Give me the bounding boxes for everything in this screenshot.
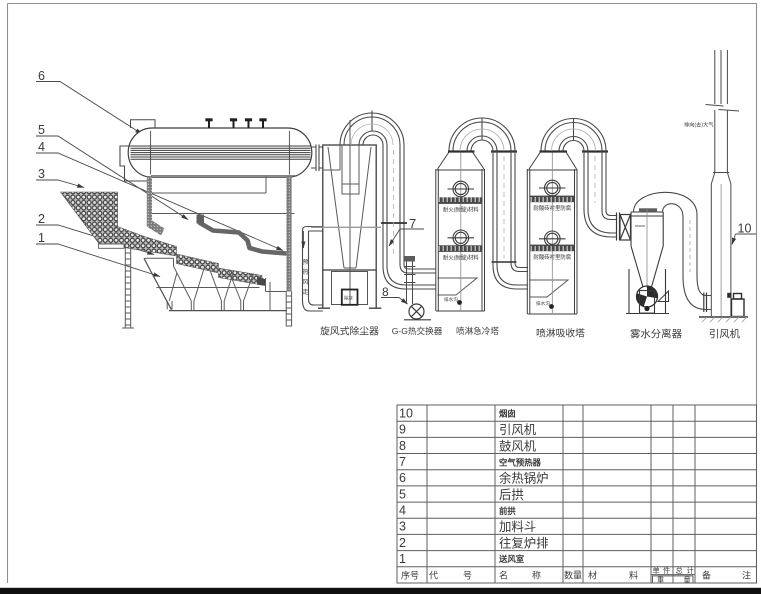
svg-text:重: 重 <box>657 575 664 584</box>
svg-text:3: 3 <box>399 520 406 534</box>
svg-text:余热锅炉: 余热锅炉 <box>499 471 549 486</box>
svg-text:加料斗: 加料斗 <box>499 520 536 534</box>
svg-text:代: 代 <box>429 571 438 581</box>
svg-text:预: 预 <box>302 258 308 266</box>
svg-text:2: 2 <box>38 212 45 226</box>
svg-text:备: 备 <box>702 570 711 581</box>
svg-text:材: 材 <box>588 570 597 581</box>
svg-text:走: 走 <box>302 288 308 296</box>
svg-text:喷淋吸收塔: 喷淋吸收塔 <box>536 327 585 340</box>
svg-text:数量: 数量 <box>564 570 582 581</box>
svg-text:6: 6 <box>399 471 406 485</box>
svg-text:耐火(耐酸)材料: 耐火(耐酸)材料 <box>443 206 480 214</box>
svg-text:量: 量 <box>684 575 691 584</box>
svg-text:9: 9 <box>399 423 406 437</box>
svg-text:名: 名 <box>499 570 508 581</box>
svg-text:注: 注 <box>742 570 751 581</box>
svg-text:号: 号 <box>463 571 472 581</box>
svg-text:排水沟: 排水沟 <box>536 300 550 307</box>
svg-text:4: 4 <box>38 140 45 154</box>
svg-text:6: 6 <box>38 69 45 83</box>
svg-text:往复炉排: 往复炉排 <box>499 535 549 550</box>
svg-text:耐酸砖衬里防腐: 耐酸砖衬里防腐 <box>533 253 571 261</box>
svg-text:10: 10 <box>738 222 752 236</box>
svg-text:1: 1 <box>399 552 406 566</box>
svg-text:喷淋急冷塔: 喷淋急冷塔 <box>456 325 499 336</box>
svg-text:序号: 序号 <box>401 570 419 581</box>
svg-text:风: 风 <box>302 279 308 286</box>
svg-text:G-G热交换器: G-G热交换器 <box>392 325 443 336</box>
svg-text:排水沟: 排水沟 <box>444 296 458 303</box>
svg-text:雾水分离器: 雾水分离器 <box>630 328 683 341</box>
svg-text:8: 8 <box>382 285 389 299</box>
svg-text:排向(去)大气: 排向(去)大气 <box>684 121 713 129</box>
svg-text:10: 10 <box>399 407 413 421</box>
svg-text:3: 3 <box>38 167 45 181</box>
svg-text:烟囱: 烟囱 <box>499 409 516 419</box>
svg-text:总: 总 <box>676 566 683 575</box>
svg-text:单: 单 <box>653 566 660 575</box>
svg-text:称: 称 <box>532 570 541 581</box>
svg-text:空气预热器: 空气预热器 <box>499 458 541 468</box>
svg-text:4: 4 <box>399 504 406 518</box>
svg-text:送风室: 送风室 <box>498 554 525 564</box>
svg-text:引风机: 引风机 <box>499 423 537 437</box>
svg-text:耐酸砖衬里防腐: 耐酸砖衬里防腐 <box>533 204 571 212</box>
svg-text:前拱: 前拱 <box>499 506 516 516</box>
svg-text:旋风式除尘器: 旋风式除尘器 <box>320 325 379 338</box>
svg-text:8: 8 <box>399 439 406 453</box>
svg-text:引风机: 引风机 <box>709 328 741 341</box>
svg-text:2: 2 <box>399 536 406 550</box>
svg-text:1: 1 <box>38 231 45 245</box>
svg-text:除灰: 除灰 <box>344 295 353 302</box>
svg-text:鼓风机: 鼓风机 <box>499 439 537 453</box>
svg-text:5: 5 <box>38 123 45 137</box>
svg-text:热: 热 <box>302 268 308 276</box>
svg-text:5: 5 <box>399 487 406 501</box>
svg-text:件: 件 <box>663 566 670 575</box>
svg-text:后拱: 后拱 <box>499 488 524 502</box>
svg-text:计: 计 <box>687 566 694 575</box>
svg-text:料: 料 <box>629 570 638 581</box>
svg-text:耐火(耐酸)材料: 耐火(耐酸)材料 <box>443 254 480 262</box>
svg-text:7: 7 <box>399 455 406 469</box>
